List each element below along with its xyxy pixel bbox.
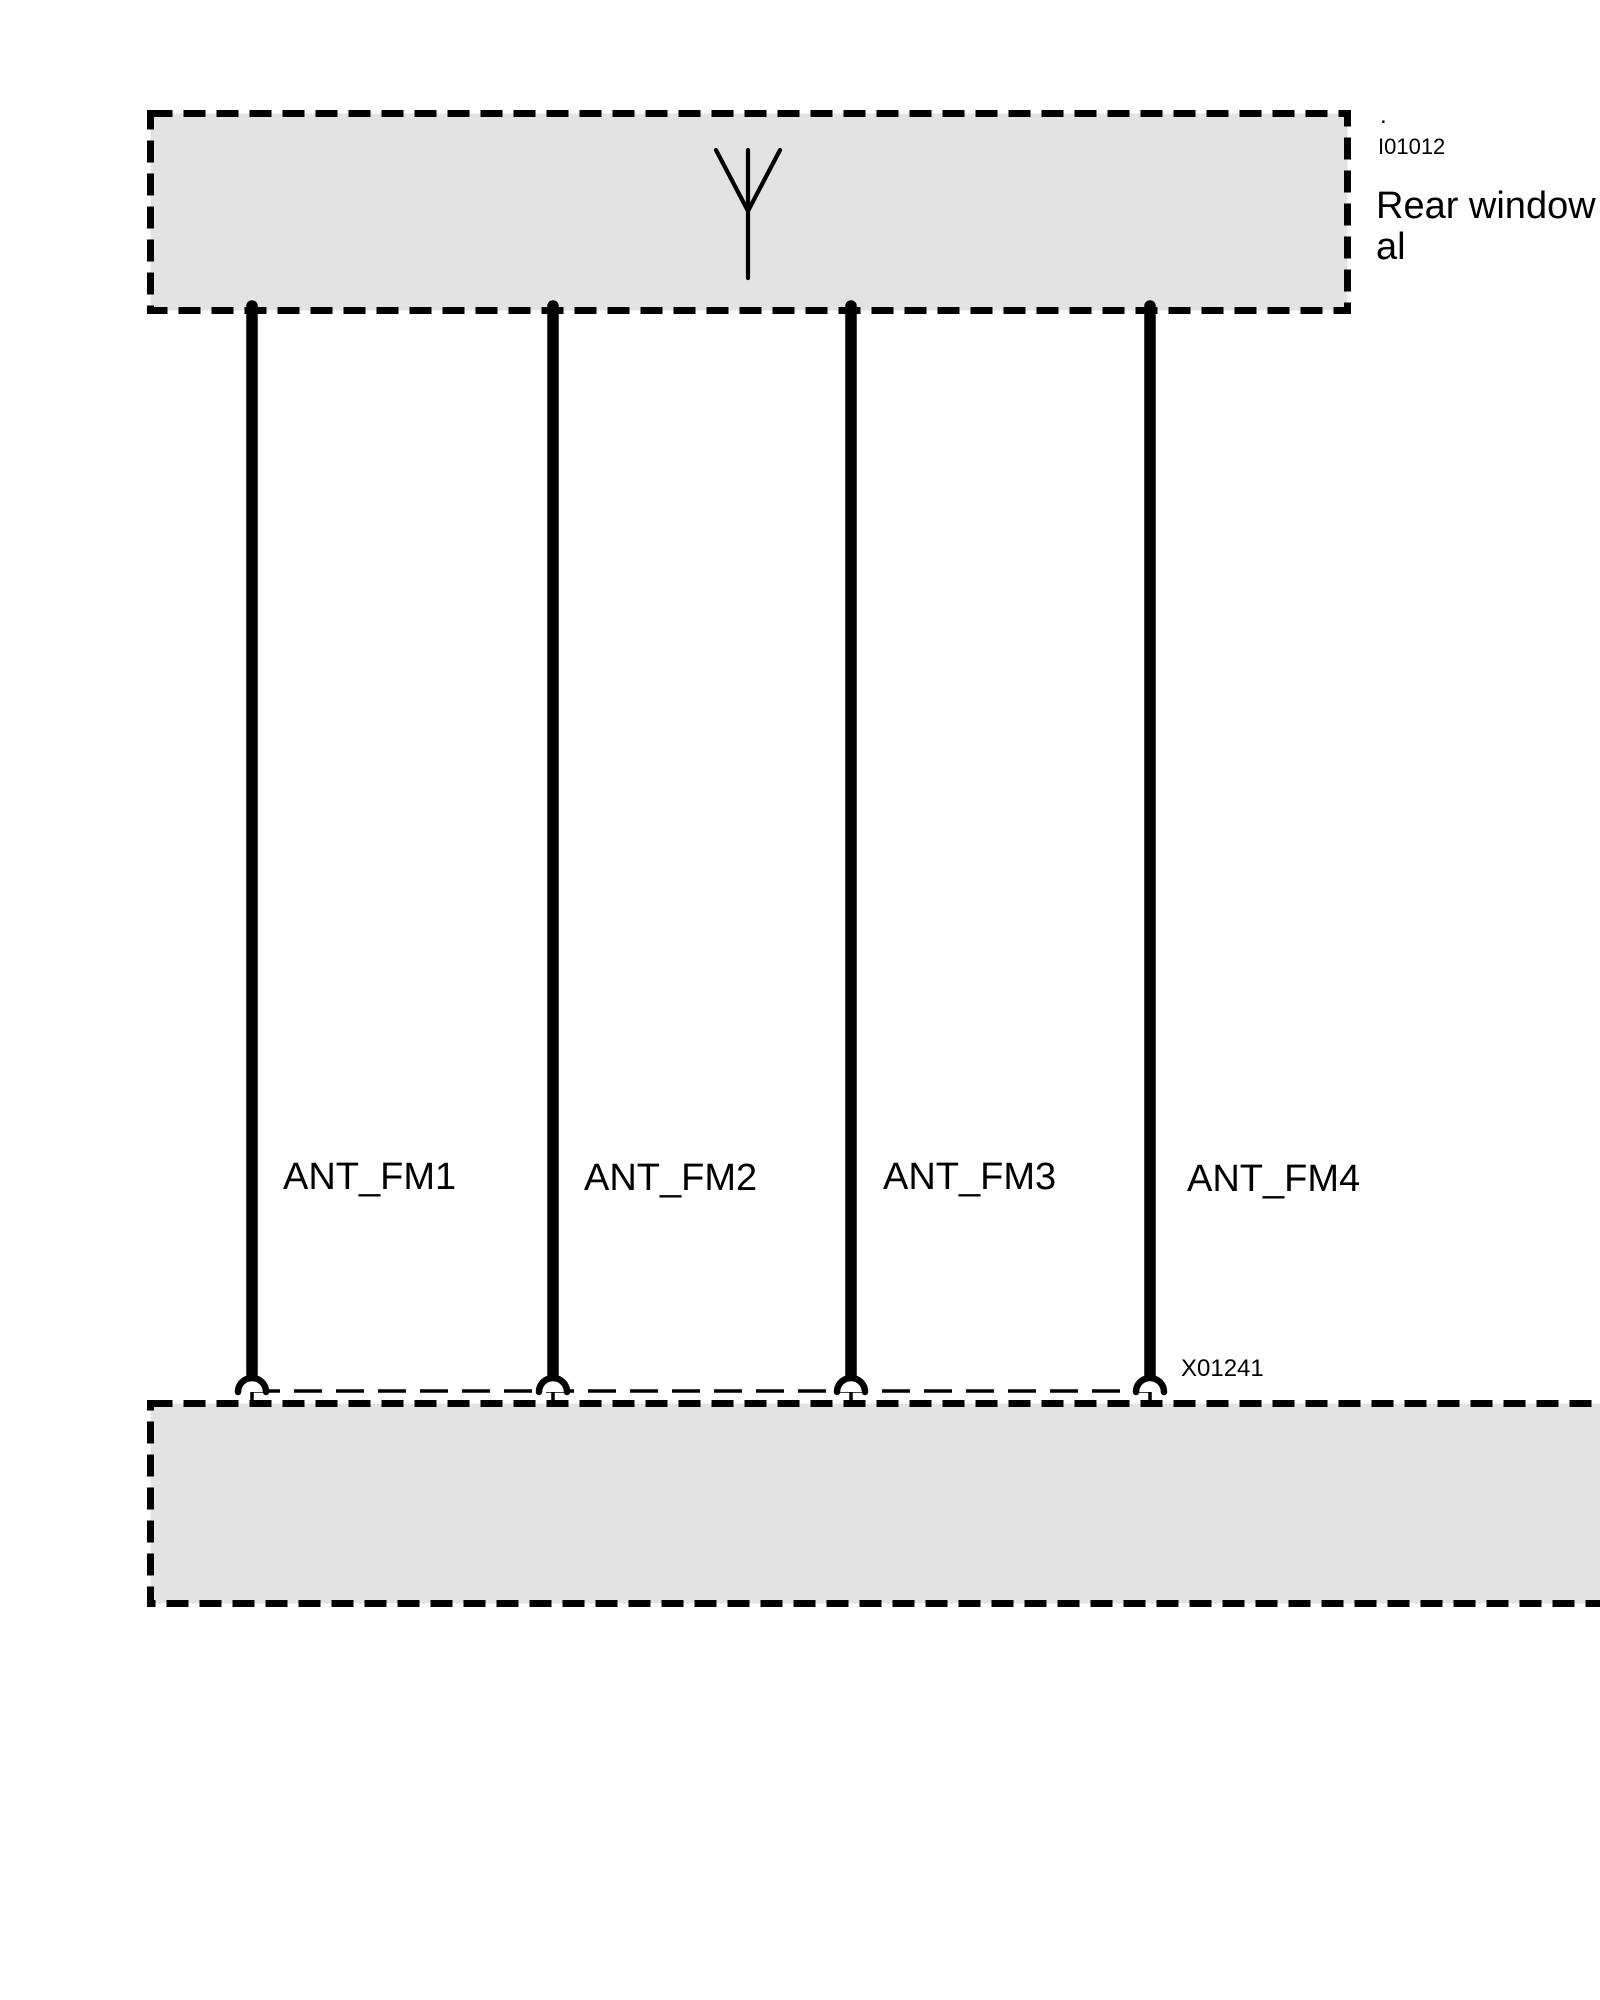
component-ref-id: I01012 [1378,134,1445,159]
connector-socket-pin2 [539,1378,567,1392]
connector-socket-pin1 [238,1378,266,1392]
connector-id-label: X01241 [1181,1355,1264,1382]
connector-socket-pin4 [1136,1378,1164,1392]
component-ref-mark: . [1380,102,1387,129]
control-module-box [151,1404,1600,1604]
wiring-diagram: . I01012 Rear window al ANT_FM1 ANT_FM2 … [0,0,1600,2000]
wire-label-ant-fm4: ANT_FM4 [1187,1158,1360,1200]
page: . I01012 Rear window al ANT_FM1 ANT_FM2 … [0,0,1600,2000]
wire-label-ant-fm2: ANT_FM2 [584,1157,757,1199]
connector-socket-pin3 [837,1378,865,1392]
wire-label-ant-fm3: ANT_FM3 [883,1156,1056,1198]
wire-label-ant-fm1: ANT_FM1 [283,1156,456,1198]
component-name-line2: al [1376,226,1406,268]
component-name-line1: Rear window [1376,185,1596,227]
